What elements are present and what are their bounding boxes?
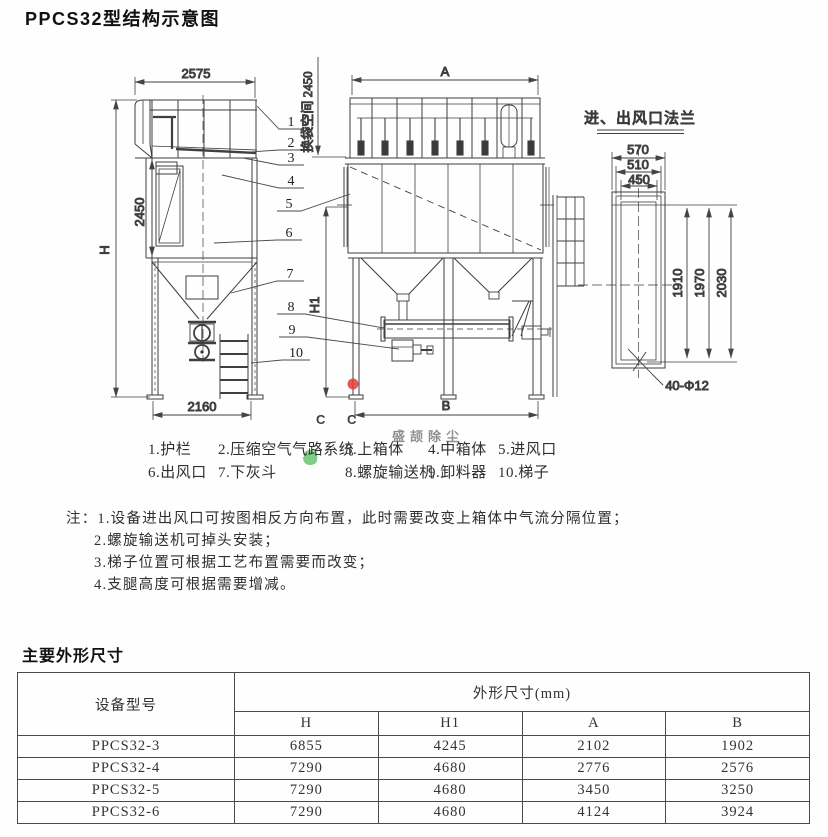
watermark-letter-c1: C — [316, 412, 326, 427]
dim-bolt-spec: 40-Φ12 — [665, 378, 709, 393]
dim-450: 450 — [628, 172, 650, 187]
dim-2450: 2450 — [132, 198, 147, 227]
dim-1970: 1970 — [692, 269, 707, 298]
legend-item-5: 5.进风口 — [498, 438, 557, 459]
dim-2575: 2575 — [182, 66, 211, 81]
flange-view-title: 进、出风口法兰 — [584, 110, 696, 127]
legend-item-8: 8.螺旋输送机 — [345, 461, 435, 482]
front-view: A 换袋空间 2450 H1 B — [300, 57, 584, 419]
note-line-2: 2.螺旋输送机可掉头安装； — [94, 530, 629, 552]
table-row: PPCS32-3 6855 4245 2102 1902 — [18, 736, 810, 758]
part-label-5: 5 — [286, 197, 293, 212]
part-label-1: 1 — [288, 115, 295, 130]
legend-item-9: 9.卸料器 — [428, 461, 487, 482]
dim-A: A — [441, 64, 450, 79]
legend-item-3: 3.上箱体 — [345, 438, 404, 459]
table-row: PPCS32-6 7290 4680 4124 3924 — [18, 802, 810, 824]
dim-2160: 2160 — [188, 399, 217, 414]
legend-item-6: 6.出风口 — [148, 461, 207, 482]
legend-item-2: 2.压缩空气气路系统 — [218, 438, 354, 459]
model-cell: PPCS32-5 — [18, 780, 235, 802]
table-header-A: A — [522, 712, 666, 736]
part-label-8: 8 — [288, 300, 295, 315]
model-cell: PPCS32-3 — [18, 736, 235, 758]
side-view: 2575 H 2450 2160 — [97, 66, 263, 420]
part-label-6: 6 — [286, 226, 293, 241]
legend-item-4: 4.中箱体 — [428, 438, 487, 459]
model-cell: PPCS32-4 — [18, 758, 235, 780]
dim-bag-space: 换袋空间 2450 — [300, 71, 315, 152]
part-label-4: 4 — [288, 174, 295, 189]
note-line-1: 注：1.设备进出风口可按图相反方向布置，此时需要改变上箱体中气流分隔位置； — [66, 508, 629, 530]
dim-570: 570 — [627, 142, 649, 157]
page-title: PPCS32型结构示意图 — [25, 5, 220, 31]
legend-item-7: 7.下灰斗 — [218, 461, 277, 482]
note-line-4: 4.支腿高度可根据需要增减。 — [94, 574, 629, 596]
notes-prefix: 注： — [66, 511, 97, 527]
table-header-model: 设备型号 — [18, 673, 235, 736]
table-row: PPCS32-4 7290 4680 2776 2576 — [18, 758, 810, 780]
table-header-group: 外形尺寸(mm) — [235, 673, 810, 712]
flange-detail-view: 进、出风口法兰 570 510 — [578, 110, 737, 393]
document-page: PPCS32型结构示意图 — [0, 0, 828, 837]
watermark-letter-c2: C — [347, 412, 357, 427]
table-row: PPCS32-5 7290 4680 3450 3250 — [18, 780, 810, 802]
structure-drawing: 2575 H 2450 2160 1 2 3 4 5 6 7 — [0, 55, 828, 480]
dim-H1: H1 — [307, 297, 322, 314]
legend-item-1: 1.护栏 — [148, 438, 191, 459]
dim-510: 510 — [627, 157, 649, 172]
part-label-3: 3 — [288, 151, 295, 166]
section-title: 主要外形尺寸 — [22, 642, 124, 666]
notes-block: 注：1.设备进出风口可按图相反方向布置，此时需要改变上箱体中气流分隔位置； 2.… — [66, 508, 629, 596]
table-header-H: H — [235, 712, 379, 736]
watermark-red-dot — [348, 379, 359, 390]
part-label-9: 9 — [289, 323, 296, 338]
table-header-B: B — [666, 712, 810, 736]
dim-H: H — [97, 245, 112, 254]
note-line-3: 3.梯子位置可根据工艺布置需要而改变； — [94, 552, 629, 574]
part-label-2: 2 — [288, 136, 295, 151]
legend-item-10: 10.梯子 — [498, 461, 549, 482]
model-cell: PPCS32-6 — [18, 802, 235, 824]
dim-2030: 2030 — [714, 269, 729, 298]
table-header-H1: H1 — [378, 712, 522, 736]
part-label-7: 7 — [287, 267, 294, 282]
dim-1910: 1910 — [670, 269, 685, 298]
dim-B: B — [442, 398, 451, 413]
part-label-10: 10 — [289, 346, 303, 361]
dimensions-table: 设备型号 外形尺寸(mm) H H1 A B PPCS32-3 6855 424… — [17, 672, 810, 824]
